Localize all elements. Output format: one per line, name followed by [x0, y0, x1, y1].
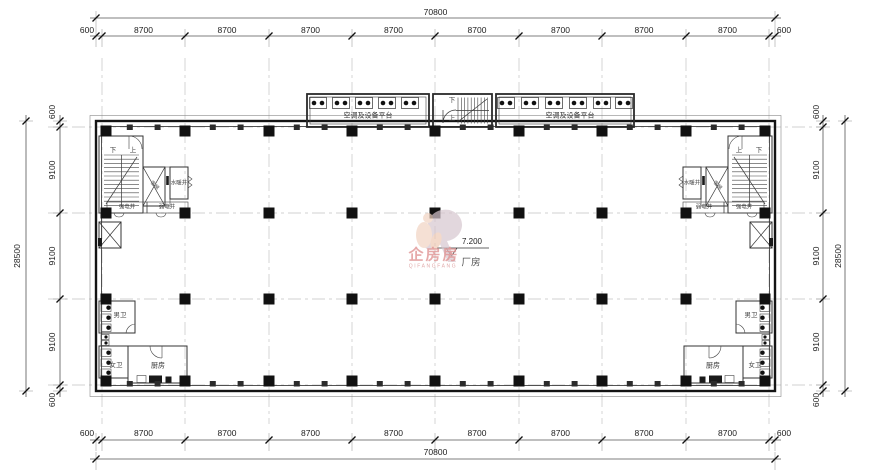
watermark-logo	[416, 210, 462, 262]
exterior-walls	[96, 121, 775, 391]
columns	[101, 125, 771, 387]
plan-drawing	[0, 0, 872, 475]
floor-plan-canvas: 空调及设备平台 空调及设备平台 下 上 下 上 上 下 水暖井 水暖井 客梯 客…	[0, 0, 872, 475]
building-outline-offset	[90, 116, 781, 397]
stair-core-right	[679, 136, 772, 217]
stair-core-left	[99, 136, 192, 217]
wc-kitchen-block-left	[99, 301, 187, 383]
wc-kitchen-block-right	[684, 301, 772, 383]
